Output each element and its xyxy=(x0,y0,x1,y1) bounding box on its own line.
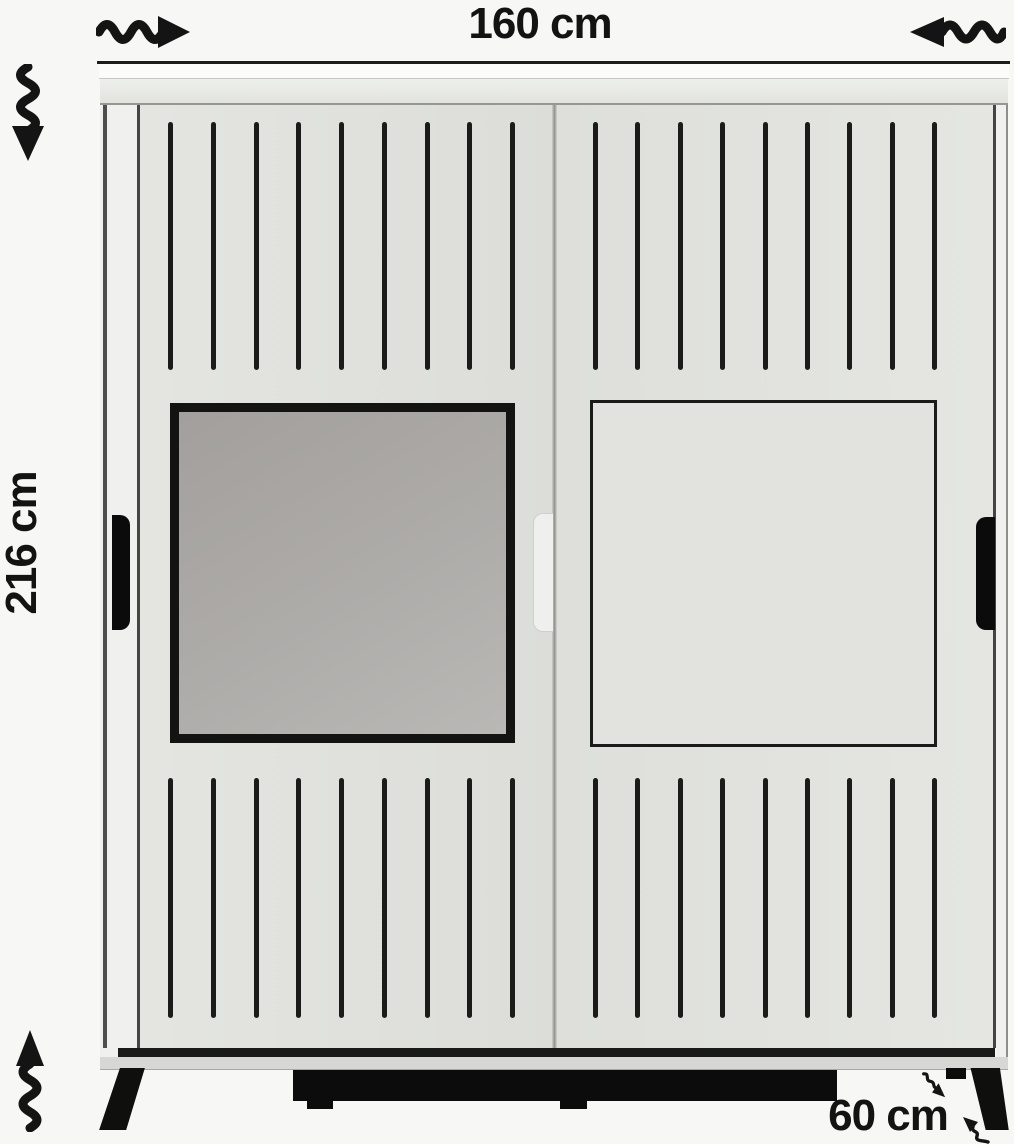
wardrobe-dimension-diagram: 160 cm 216 cm 60 cm xyxy=(0,0,1014,1144)
width-arrow-right-icon xyxy=(96,12,192,50)
wardrobe-base-edge xyxy=(100,1057,1008,1070)
plinth-foot xyxy=(560,1100,587,1109)
door-slat xyxy=(678,778,683,1018)
door-slat xyxy=(211,122,216,370)
door-slat xyxy=(510,122,515,370)
left-door-bottom-slats xyxy=(168,778,515,1018)
left-door-gap-line xyxy=(137,105,140,1048)
door-slat xyxy=(763,122,768,370)
left-front-leg xyxy=(96,1068,148,1130)
right-door-framed-panel xyxy=(590,400,937,747)
height-arrow-down-icon xyxy=(8,64,48,164)
left-door-mirror xyxy=(170,403,515,743)
door-slat xyxy=(847,122,852,370)
door-slat xyxy=(467,122,472,370)
door-slat xyxy=(763,778,768,1018)
depth-arrow-down-right-icon xyxy=(918,1072,948,1100)
door-slat xyxy=(425,122,430,370)
door-slat xyxy=(805,778,810,1018)
door-slat xyxy=(168,122,173,370)
door-slat xyxy=(890,122,895,370)
door-slat xyxy=(635,122,640,370)
wardrobe-top-panel xyxy=(99,64,1009,79)
door-slat xyxy=(168,778,173,1018)
door-slat xyxy=(847,778,852,1018)
door-slat xyxy=(254,122,259,370)
door-slat xyxy=(296,778,301,1018)
door-slat xyxy=(254,778,259,1018)
recessed-plinth xyxy=(293,1070,837,1101)
door-slat xyxy=(382,122,387,370)
door-slat xyxy=(425,778,430,1018)
left-door-handle-recess xyxy=(112,515,130,630)
door-slat xyxy=(593,778,598,1018)
center-door-handle-recess xyxy=(533,513,553,632)
right-door-top-slats xyxy=(593,122,937,370)
leg-bracket xyxy=(946,1068,966,1079)
plinth-foot xyxy=(307,1100,333,1109)
right-frame-edge-line xyxy=(1006,105,1008,1057)
door-slat xyxy=(720,778,725,1018)
width-arrow-left-icon xyxy=(906,14,1006,50)
door-slat xyxy=(932,778,937,1018)
right-door-handle-recess xyxy=(976,517,995,630)
door-slat xyxy=(296,122,301,370)
door-slat xyxy=(678,122,683,370)
door-bottom-rail xyxy=(118,1048,995,1057)
right-door-bottom-slats xyxy=(593,778,937,1018)
door-slat xyxy=(467,778,472,1018)
door-slat xyxy=(339,122,344,370)
door-slat xyxy=(593,122,598,370)
door-slat xyxy=(382,778,387,1018)
door-slat xyxy=(339,778,344,1018)
left-door-top-slats xyxy=(168,122,515,370)
door-slat xyxy=(211,778,216,1018)
door-slat xyxy=(510,778,515,1018)
door-slat xyxy=(720,122,725,370)
door-slat xyxy=(890,778,895,1018)
height-dimension-label: 216 cm xyxy=(0,458,44,628)
width-dimension-label: 160 cm xyxy=(420,0,660,48)
door-slat xyxy=(805,122,810,370)
wardrobe-header-rail xyxy=(100,79,1008,105)
height-arrow-up-icon xyxy=(12,1028,48,1132)
door-slat xyxy=(635,778,640,1018)
left-frame-shadow-line xyxy=(103,105,107,1048)
door-slat xyxy=(932,122,937,370)
